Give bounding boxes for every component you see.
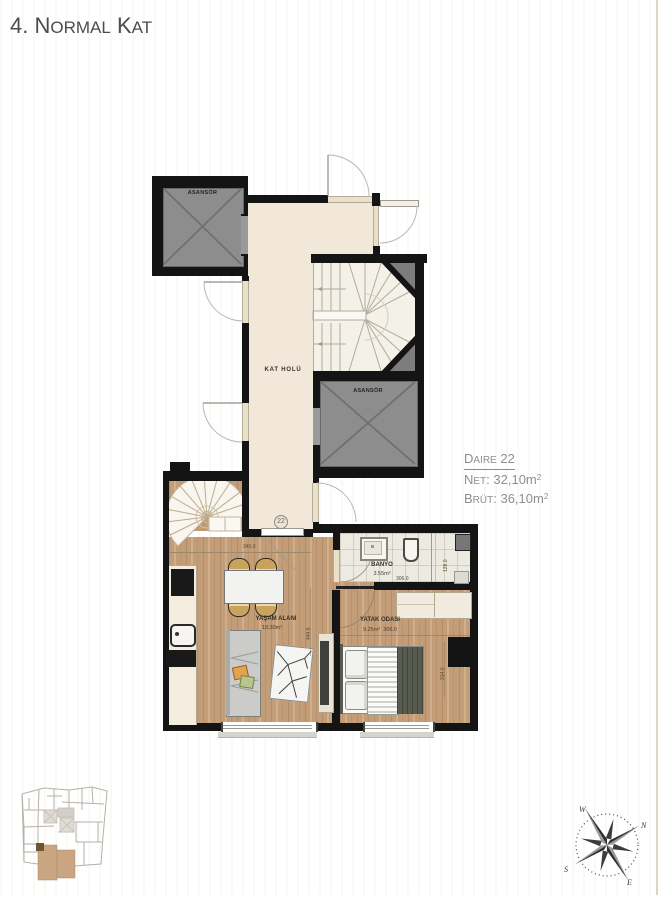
svg-text:S: S <box>564 865 568 874</box>
svg-text:E: E <box>626 878 632 887</box>
svg-text:N: N <box>640 821 647 830</box>
